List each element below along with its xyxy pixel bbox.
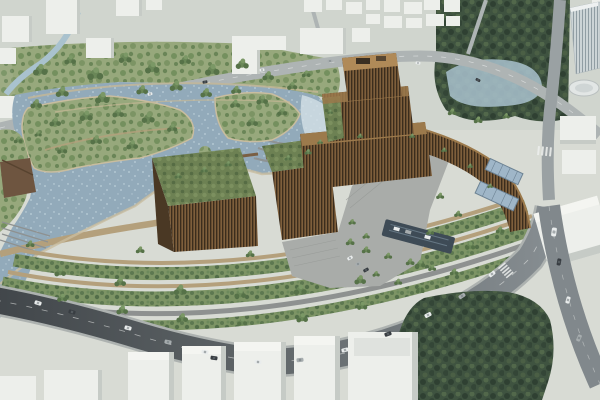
wing-green-roof [152,148,256,206]
pavilion [0,158,36,198]
wing-southwest [152,148,258,252]
aerial-rendering: Aerial architectural rendering of a terr… [0,0,600,400]
massing-block [116,0,142,16]
massing-block [352,28,370,42]
massing-block [300,28,346,54]
massing-block [294,336,340,400]
massing-block [562,150,596,174]
massing-block [128,352,174,400]
massing-block [348,332,418,400]
rendering-canvas: Aerial architectural rendering of a terr… [0,0,600,400]
massing-block [46,0,80,34]
massing-block [182,346,226,400]
rooftop-unit [356,58,370,64]
massing-block [44,370,102,400]
massing-block [560,116,596,144]
massing-block [0,48,16,64]
tower-podium-core [575,84,593,93]
massing-block [86,38,114,58]
massing-block [234,342,286,400]
rooftop-unit [376,56,386,61]
massing-block [0,376,36,400]
massing-block [146,0,162,10]
massing-block [2,16,32,42]
